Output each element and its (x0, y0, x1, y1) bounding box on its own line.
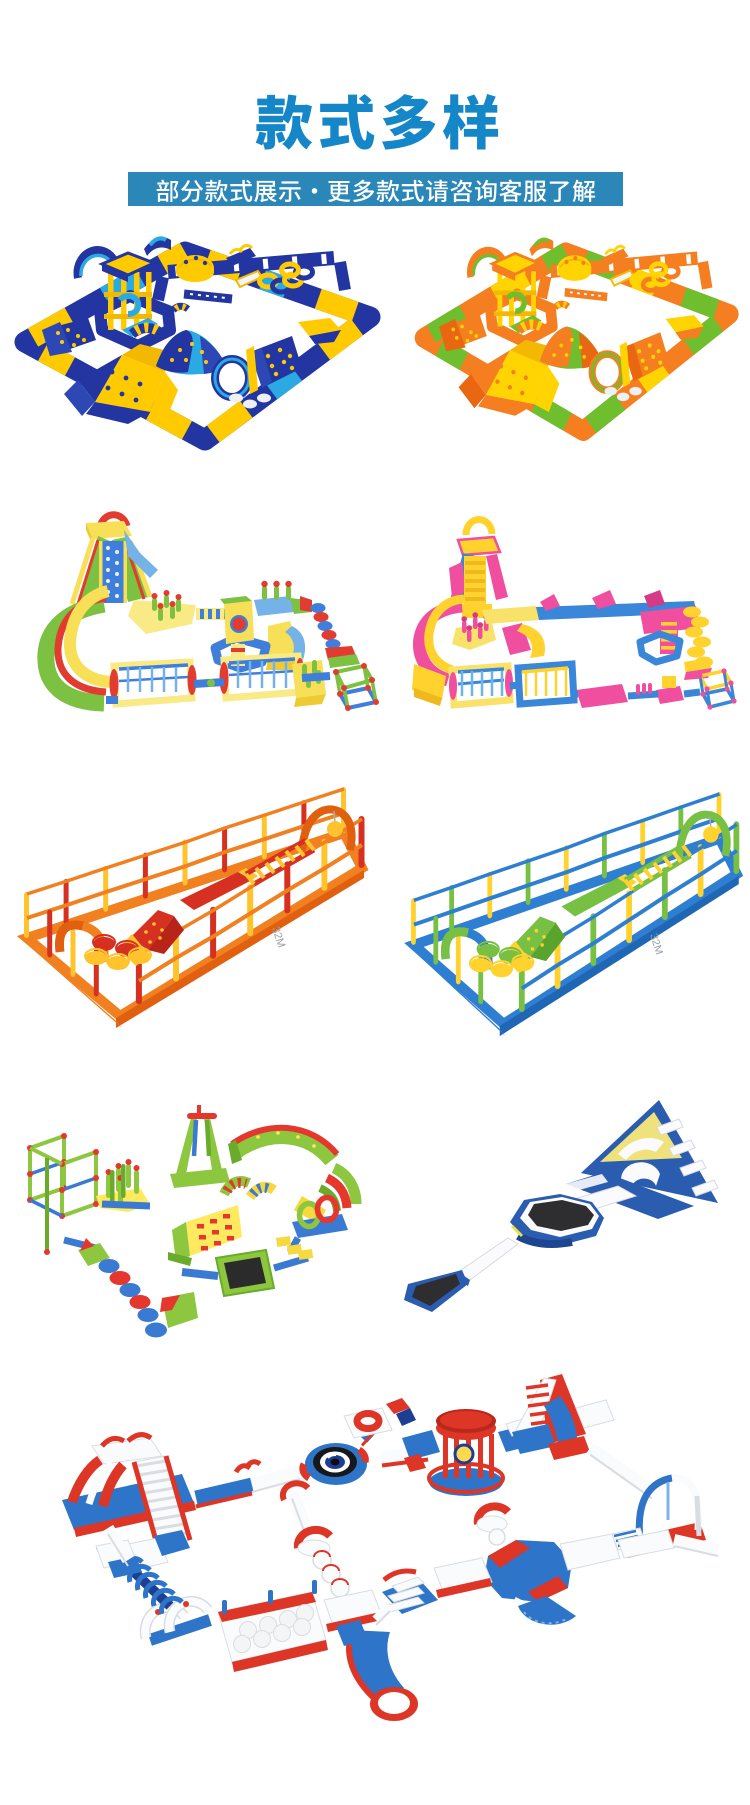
svg-text:32M: 32M (647, 932, 664, 956)
svg-text:32M: 32M (269, 925, 287, 949)
